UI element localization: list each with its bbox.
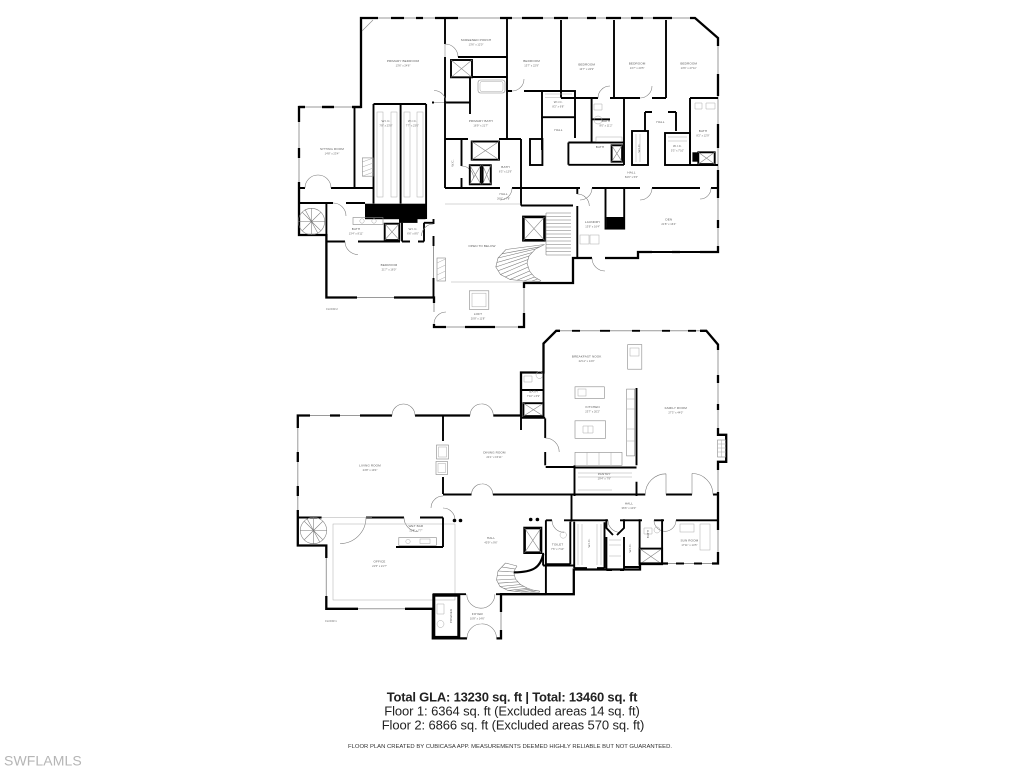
- svg-text:BATH: BATH: [501, 165, 509, 169]
- svg-text:W.I.C.: W.I.C.: [628, 543, 632, 552]
- svg-text:13'9" x 16'4": 13'9" x 16'4": [585, 225, 600, 229]
- svg-text:SITTING ROOM: SITTING ROOM: [320, 147, 344, 151]
- svg-text:BATH: BATH: [352, 227, 360, 231]
- svg-text:13'6" x 24'6": 13'6" x 24'6": [396, 64, 411, 68]
- svg-text:21'5" x 21'7": 21'5" x 21'7": [372, 564, 387, 568]
- svg-text:W.I.C.: W.I.C.: [408, 119, 417, 123]
- svg-text:Floor 1: 6364 sq. ft (Excluded: Floor 1: 6364 sq. ft (Excluded areas 14 …: [384, 704, 639, 719]
- svg-text:DEN: DEN: [665, 218, 672, 222]
- svg-text:OFFICE: OFFICE: [374, 560, 386, 564]
- svg-text:HALL: HALL: [656, 120, 664, 124]
- svg-text:BEDROOM: BEDROOM: [578, 63, 595, 67]
- svg-text:Floor 2: 6866 sq. ft (Excluded: Floor 2: 6866 sq. ft (Excluded areas 570…: [382, 718, 645, 733]
- svg-text:BATH: BATH: [699, 129, 707, 133]
- svg-text:W.C.: W.C.: [451, 159, 455, 166]
- svg-text:BEDROOM: BEDROOM: [523, 59, 540, 63]
- svg-text:WET BAR: WET BAR: [409, 524, 424, 528]
- svg-text:FLOOR 2: FLOOR 2: [326, 307, 338, 311]
- svg-text:FLOOR 1: FLOOR 1: [325, 619, 337, 623]
- svg-text:W.I.C.: W.I.C.: [587, 538, 591, 547]
- svg-text:20'8" x 11'8": 20'8" x 11'8": [471, 317, 486, 321]
- svg-text:HALL: HALL: [500, 192, 508, 196]
- svg-text:21'7" x 16'0": 21'7" x 16'0": [382, 268, 397, 272]
- svg-text:45'9" x 9'6": 45'9" x 9'6": [484, 541, 497, 545]
- svg-text:7'7" x 23'0": 7'7" x 23'0": [406, 124, 419, 128]
- svg-text:24'1" x 15'11": 24'1" x 15'11": [486, 455, 502, 459]
- svg-text:BEDROOM: BEDROOM: [680, 62, 697, 66]
- svg-text:7'10" x 6'9": 7'10" x 6'9": [527, 394, 540, 398]
- svg-text:HALL: HALL: [554, 128, 562, 132]
- svg-text:PRIMARY BEDROOM: PRIMARY BEDROOM: [387, 59, 420, 63]
- svg-text:BEDROOM: BEDROOM: [381, 263, 398, 267]
- svg-text:16'9" x 21'7": 16'9" x 21'7": [473, 124, 488, 128]
- svg-text:13'7" x 20'5": 13'7" x 20'5": [630, 66, 645, 70]
- svg-text:LAUNDRY: LAUNDRY: [585, 220, 600, 224]
- svg-text:8'2" x 6'8": 8'2" x 6'8": [552, 105, 564, 109]
- svg-text:FAMILY ROOM: FAMILY ROOM: [665, 406, 688, 410]
- svg-text:HALL: HALL: [487, 536, 495, 540]
- svg-text:PANTRY: PANTRY: [598, 472, 611, 476]
- svg-text:HALL: HALL: [627, 171, 635, 175]
- svg-text:W.I.C.: W.I.C.: [381, 119, 390, 123]
- svg-text:23'7" x 20'2": 23'7" x 20'2": [585, 410, 600, 414]
- svg-text:26'6" x 7'8": 26'6" x 7'8": [497, 197, 510, 201]
- svg-text:Total GLA: 13230 sq. ft | Tota: Total GLA: 13230 sq. ft | Total: 13460 s…: [387, 689, 638, 704]
- svg-text:DINING ROOM: DINING ROOM: [483, 451, 506, 455]
- svg-text:W.I.C.: W.I.C.: [637, 143, 641, 152]
- svg-text:5'3" x 7'10": 5'3" x 7'10": [671, 149, 684, 153]
- svg-text:FOYER: FOYER: [472, 612, 484, 616]
- svg-text:19'4" x 7'9": 19'4" x 7'9": [598, 477, 611, 481]
- svg-text:BREAKFAST NOOK: BREAKFAST NOOK: [572, 355, 602, 359]
- svg-text:7'6" x 7'10": 7'6" x 7'10": [551, 547, 564, 551]
- svg-text:BATH: BATH: [602, 119, 610, 123]
- svg-text:10'8" x 14'6": 10'8" x 14'6": [470, 617, 485, 621]
- svg-text:27'3" x 44'0": 27'3" x 44'0": [668, 411, 683, 415]
- svg-text:22'11" x 14'0": 22'11" x 14'0": [579, 359, 595, 363]
- svg-text:BATH: BATH: [529, 390, 537, 394]
- svg-text:BATH: BATH: [596, 145, 604, 149]
- svg-text:13'6" x 27'11": 13'6" x 27'11": [681, 66, 697, 70]
- svg-text:8'2" x 12'9": 8'2" x 12'9": [696, 134, 709, 138]
- svg-text:FLOOR PLAN CREATED BY CUBICASA: FLOOR PLAN CREATED BY CUBICASA APP. MEAS…: [348, 744, 672, 750]
- svg-text:14'8" x 23'4": 14'8" x 23'4": [325, 152, 340, 156]
- svg-text:LIVING ROOM: LIVING ROOM: [359, 464, 381, 468]
- svg-text:SCREENED PORCH: SCREENED PORCH: [461, 38, 492, 42]
- svg-text:13'7" x 22'9": 13'7" x 22'9": [524, 64, 539, 68]
- svg-text:BATH: BATH: [646, 530, 650, 538]
- svg-text:W.I.C.: W.I.C.: [673, 144, 682, 148]
- svg-text:13'6" x 12'0": 13'6" x 12'0": [469, 43, 484, 47]
- svg-text:21'8" x 16'4": 21'8" x 16'4": [661, 222, 676, 226]
- svg-text:17'11" x 14'5": 17'11" x 14'5": [681, 543, 697, 547]
- svg-text:6'3" x 12'9": 6'3" x 12'9": [499, 170, 512, 174]
- svg-text:SWFLAMLS: SWFLAMLS: [4, 753, 82, 768]
- svg-text:84'0" x 5'6": 84'0" x 5'6": [625, 175, 638, 179]
- svg-text:W.I.C.: W.I.C.: [554, 100, 563, 104]
- svg-text:SUN ROOM: SUN ROOM: [680, 539, 698, 543]
- svg-text:LOFT: LOFT: [474, 312, 482, 316]
- svg-text:TOILET: TOILET: [552, 543, 563, 547]
- svg-text:HALL: HALL: [625, 502, 633, 506]
- svg-text:24'8" x 19'4": 24'8" x 19'4": [363, 468, 378, 472]
- svg-text:13'4" x 8'11": 13'4" x 8'11": [349, 232, 364, 236]
- svg-text:PRIMARY BATH: PRIMARY BATH: [469, 119, 493, 123]
- svg-text:6'6" x 8'0": 6'6" x 8'0": [407, 232, 419, 236]
- svg-text:W.I.C.: W.I.C.: [408, 227, 417, 231]
- svg-text:12'8" x 7'7": 12'8" x 7'7": [409, 529, 422, 533]
- svg-text:8'0" x 11'2": 8'0" x 11'2": [599, 124, 612, 128]
- svg-text:OPEN TO BELOW: OPEN TO BELOW: [468, 244, 495, 248]
- svg-text:KITCHEN: KITCHEN: [585, 405, 599, 409]
- svg-text:POWDER: POWDER: [449, 608, 453, 623]
- svg-text:13'7" x 22'9": 13'7" x 22'9": [579, 67, 594, 71]
- svg-text:36'6" x 10'0": 36'6" x 10'0": [622, 506, 637, 510]
- svg-text:7'8" x 23'0": 7'8" x 23'0": [379, 124, 392, 128]
- svg-text:BEDROOM: BEDROOM: [629, 62, 646, 66]
